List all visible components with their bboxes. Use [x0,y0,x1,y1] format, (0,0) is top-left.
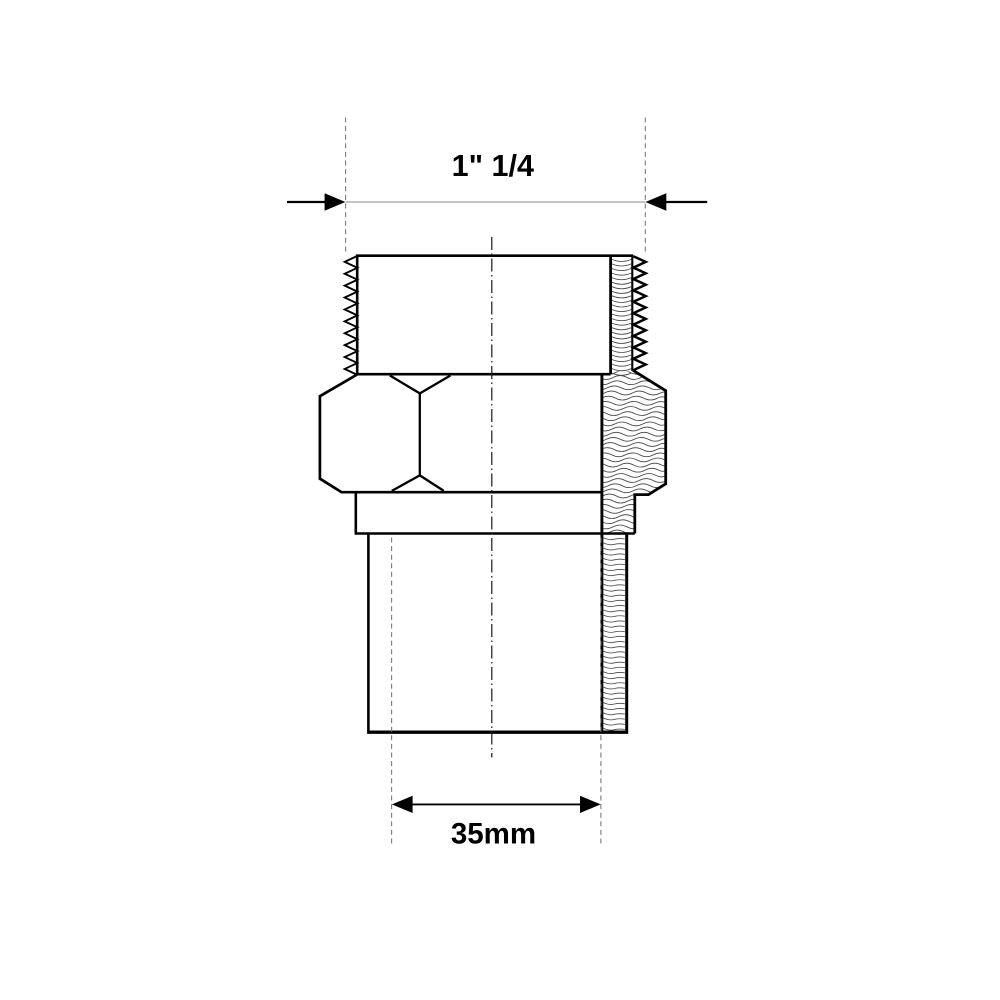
svg-text:1" 1/4: 1" 1/4 [452,149,534,183]
svg-text:35mm: 35mm [451,817,536,850]
